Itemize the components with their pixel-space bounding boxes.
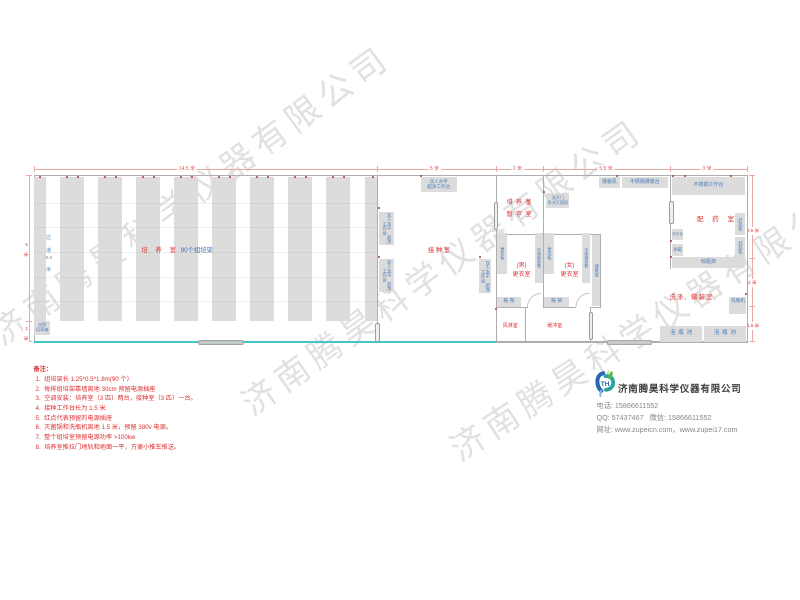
svg-text:TH: TH [601,380,610,387]
